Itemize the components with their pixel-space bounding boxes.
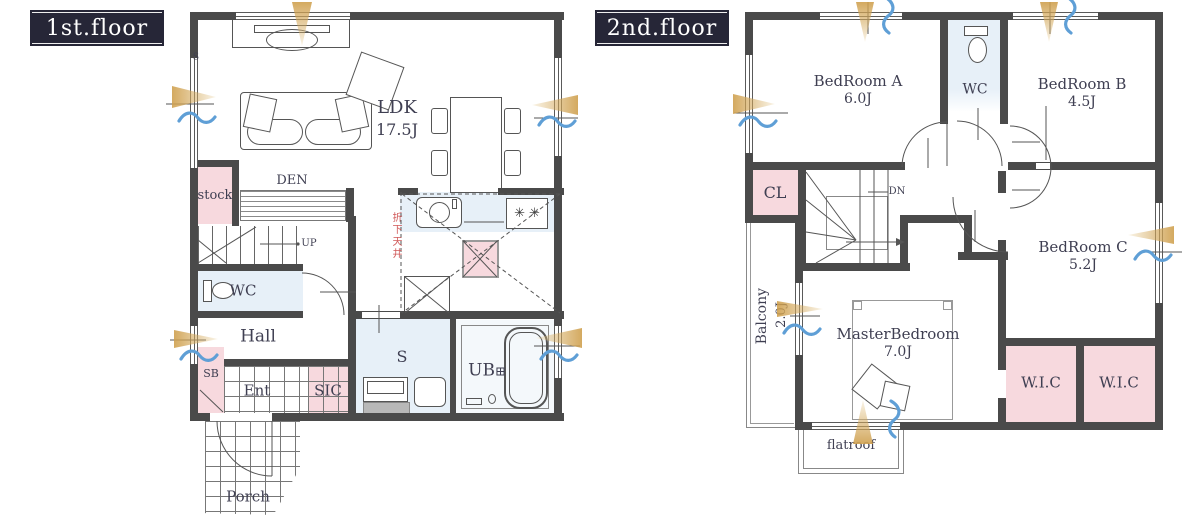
- wind-wave-icon: [536, 112, 578, 134]
- sunlight-beam-icon: [856, 2, 874, 42]
- label-bedroom-a: BedRoom A 6.0J: [814, 72, 903, 108]
- sink-bowl: [429, 202, 450, 223]
- master-size: 7.0J: [836, 344, 959, 362]
- label-bedroom-b: BedRoom B 4.5J: [1038, 75, 1127, 111]
- wall: [190, 311, 303, 318]
- ldk-size: 17.5J: [376, 119, 418, 139]
- wall: [190, 264, 303, 271]
- wind-wave-icon: [882, 398, 904, 440]
- label-dn: DN: [889, 186, 906, 199]
- label-wc-2f: WC: [962, 81, 987, 99]
- stairs-first-floor: [198, 226, 300, 264]
- wall: [232, 160, 239, 226]
- ub-name: UB: [468, 360, 495, 380]
- second-floor-title-box: 2nd.floor: [595, 10, 729, 46]
- wind-wave-icon: [538, 346, 580, 368]
- first-floor-title-box: 1st.floor: [30, 10, 164, 46]
- bedroom-b-name: BedRoom B: [1038, 75, 1127, 94]
- kitchen-stove: ✳✳: [506, 198, 548, 229]
- bedroom-a-name: BedRoom A: [814, 72, 903, 91]
- refrigerator-space: [462, 240, 499, 278]
- wind-wave-icon: [781, 320, 823, 342]
- label-ub: UB⊞: [468, 360, 506, 381]
- toilet-tank-1f: [203, 280, 212, 302]
- label-sic: SIC: [314, 382, 342, 401]
- bedroom-c-name: BedRoom C: [1038, 238, 1127, 257]
- tv-board-ellipse: [266, 29, 318, 51]
- door-opening: [1036, 163, 1050, 169]
- wall: [224, 359, 350, 366]
- wall: [1008, 162, 1163, 170]
- wall: [900, 215, 972, 223]
- wind-wave-icon: [178, 346, 220, 368]
- wall: [798, 263, 910, 271]
- drain-icon: ⊞: [495, 364, 506, 379]
- label-storage: S: [397, 347, 408, 367]
- bedroom-c-size: 5.2J: [1038, 257, 1127, 275]
- label-shutter-mark: S: [193, 52, 199, 63]
- bath-drain: [488, 394, 496, 404]
- wall: [998, 240, 1006, 370]
- window: [795, 283, 803, 355]
- sink-faucet: [452, 199, 457, 209]
- toilet-tank-2f: [964, 26, 988, 36]
- wall: [998, 398, 1006, 422]
- wind-wave-icon: [1132, 246, 1174, 268]
- label-wc-1f: WC: [230, 282, 257, 301]
- wall: [498, 188, 564, 195]
- ldk-name: LDK: [376, 97, 418, 120]
- wall: [398, 188, 418, 195]
- label-balcony: Balcony: [754, 288, 770, 344]
- wall: [1076, 345, 1084, 422]
- bedroom-b-size: 4.5J: [1038, 94, 1127, 112]
- master-name: MasterBedroom: [836, 325, 959, 344]
- wall: [940, 12, 948, 124]
- second-floor-title: 2nd.floor: [597, 12, 727, 44]
- label-hall: Hall: [240, 326, 276, 347]
- label-wic-left: W.I.C: [1021, 374, 1061, 393]
- bed-corner: [853, 301, 862, 310]
- sunlight-beam-icon: [733, 94, 775, 114]
- burner-icon: ✳: [514, 206, 525, 221]
- dining-chair: [504, 150, 521, 176]
- label-sb: SB: [203, 367, 219, 381]
- entrance-opening: [210, 413, 272, 421]
- bathtub-inner: [509, 332, 543, 404]
- floorplan-canvas: 1st.floor 2nd.floor ✳✳: [0, 0, 1185, 526]
- toilet-bowl-2f: [968, 37, 987, 63]
- wall: [900, 218, 908, 271]
- dining-chair: [431, 108, 448, 134]
- storage-cabinet-inner: [367, 381, 404, 394]
- wind-wave-icon: [876, 0, 898, 36]
- label-cl: CL: [764, 183, 787, 203]
- label-porch: Porch: [226, 488, 270, 507]
- label-up: UP: [301, 238, 316, 251]
- wind-wave-icon: [176, 108, 218, 130]
- window: [1013, 12, 1098, 20]
- window: [236, 12, 350, 20]
- dining-table: [450, 97, 502, 193]
- sunlight-beam-icon: [1128, 226, 1174, 244]
- wall: [450, 319, 456, 421]
- laundry-basket: [414, 377, 446, 407]
- stair-well: [826, 196, 888, 250]
- wall: [745, 162, 905, 170]
- wind-wave-icon: [1058, 0, 1080, 36]
- bed-corner: [943, 301, 952, 310]
- wall: [745, 12, 1163, 20]
- first-floor-title: 1st.floor: [32, 12, 162, 44]
- label-ldk: LDK 17.5J: [376, 97, 418, 140]
- label-dropped-ceiling: 折下天井: [388, 212, 403, 280]
- dining-chair: [504, 108, 521, 134]
- label-den: DEN: [276, 173, 307, 189]
- wall: [998, 171, 1006, 193]
- sunlight-beam-icon: [1040, 2, 1058, 42]
- door-opening: [362, 312, 400, 318]
- wall: [1000, 12, 1008, 124]
- bath-fixture: [466, 398, 482, 405]
- label-stock: stock: [198, 188, 233, 204]
- bedroom-a-size: 6.0J: [814, 91, 903, 109]
- label-wic-right: W.I.C: [1099, 374, 1139, 393]
- room-den: [240, 190, 346, 221]
- label-master-bedroom: MasterBedroom 7.0J: [836, 325, 959, 361]
- label-ent: Ent: [244, 382, 271, 401]
- kitchen-fixture-space: [404, 276, 450, 314]
- wind-wave-icon: [737, 112, 779, 134]
- label-bedroom-c: BedRoom C 5.2J: [1038, 238, 1127, 274]
- burner-icon: ✳: [529, 206, 540, 221]
- dining-chair: [431, 150, 448, 176]
